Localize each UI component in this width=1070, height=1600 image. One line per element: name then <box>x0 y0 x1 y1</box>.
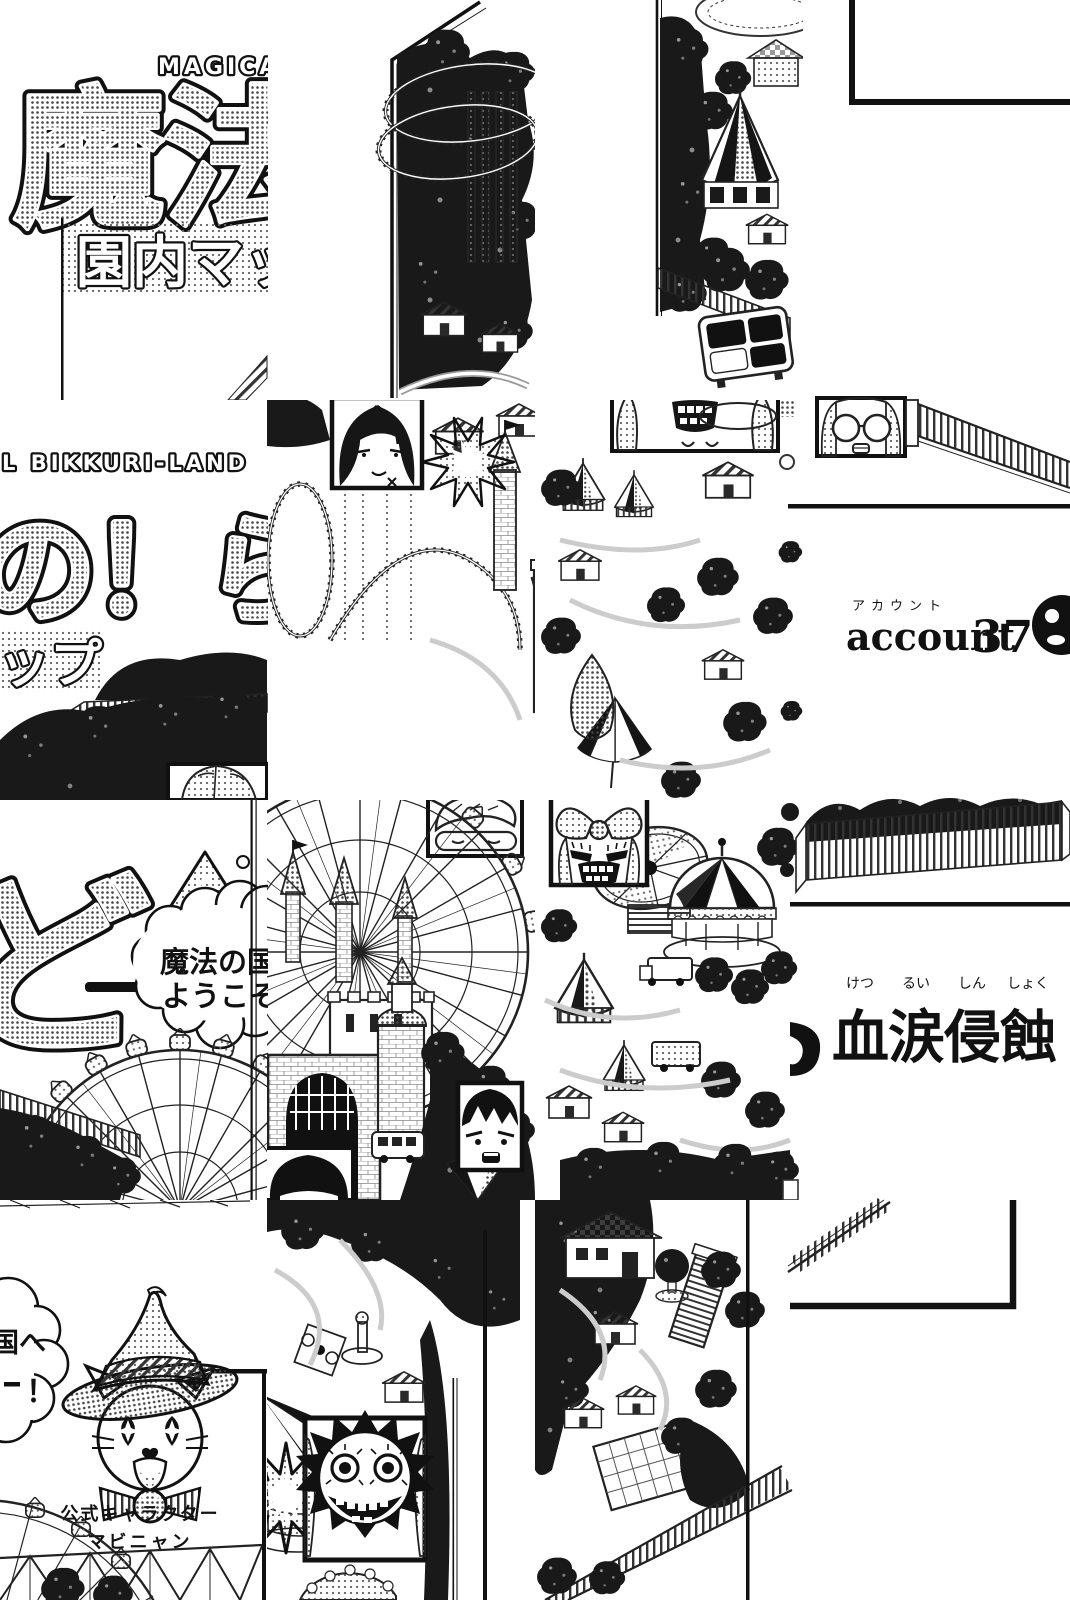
logo-kanji-main: 魔法 <box>14 74 314 248</box>
title-furigana-4: しょく <box>1007 976 1049 992</box>
carousel-canopy-fragment <box>300 1565 396 1600</box>
panel-border <box>746 1200 750 1600</box>
face-frame-ribbon <box>551 793 647 885</box>
tile-plaza-sunface <box>231 1200 520 1600</box>
wheel-strip-fragment <box>0 1200 250 1208</box>
title-kanji-1: 血 <box>832 1004 889 1071</box>
fence-fragment-diagonal <box>788 1198 890 1272</box>
title-icon-partial <box>790 1022 820 1076</box>
tile-mascot: 国へ ！ 公式キャラクター マビニャン <box>0 1200 267 1600</box>
tree-mass <box>267 395 330 448</box>
pool <box>696 0 824 36</box>
title-kanji-2: 涙 <box>888 1004 945 1071</box>
fence-fragment <box>228 356 267 400</box>
tile-map-tents <box>541 390 802 798</box>
manga-page: MAGICA 魔法 魔法 園内マッ <box>0 0 1070 1600</box>
teardrop-topiary <box>571 655 613 739</box>
welcome-line1: 魔法の国 <box>160 945 276 979</box>
tile-story-title: けつ るい しん しょく 血 涙 侵 蝕 <box>790 798 1070 1076</box>
face-frame-fragment-mouth <box>612 390 778 451</box>
park-map-label-top: 園内マッ <box>76 231 300 296</box>
fragment-line2: ！ <box>26 1375 56 1410</box>
panel-border <box>483 1230 487 1600</box>
bubble-connector <box>85 982 140 992</box>
panel-border <box>453 1378 455 1600</box>
logo-en-mid: L BIKKURI-LAND <box>2 451 249 475</box>
title-furigana-3: しん <box>958 976 986 992</box>
speech-bubble-fragment: 国へ ！ <box>0 1278 68 1442</box>
info-board <box>698 306 795 390</box>
fountain <box>342 1312 382 1364</box>
tile-panel-corner <box>852 0 1070 102</box>
chapter-number: 37 <box>972 612 1033 663</box>
truck <box>640 958 692 986</box>
gazebo <box>748 40 804 86</box>
tile-coaster-panel <box>374 2 600 398</box>
panel-border <box>262 1369 266 1600</box>
tile-logo-mid: L BIKKURI-LAND の！らん の！らん ップ <box>0 451 434 800</box>
small-tent <box>615 470 653 516</box>
face-frame-glasses <box>817 398 905 456</box>
face-frame-sun-creature <box>296 1410 434 1560</box>
speech-bubble-welcome: 魔法の国 ようこそ <box>132 881 297 1048</box>
face-frame-boy <box>458 1083 522 1170</box>
fragment-line1: 国へ <box>0 1328 46 1359</box>
hedge-fence-strip <box>796 798 1070 892</box>
tile-rides <box>541 793 799 1200</box>
chapter-icon-partial <box>1032 595 1070 655</box>
park-bus <box>372 1132 424 1163</box>
panel-border <box>251 800 253 1200</box>
tile-bottom-corner <box>788 1198 1013 1306</box>
park-building <box>746 214 788 243</box>
title-kanji-3: 侵 <box>943 1004 1001 1071</box>
tile-chapter-header: アカウント account 37 <box>788 398 1070 663</box>
welcome-line2: ようこそ <box>162 979 278 1013</box>
manga-page-art: MAGICA 魔法 魔法 園内マッ <box>0 0 1070 1600</box>
title-kanji-4: 蝕 <box>1000 1004 1057 1071</box>
panel-border <box>788 504 1070 509</box>
face-frame-woman <box>332 398 422 488</box>
panel-border-corner <box>852 0 1070 102</box>
face-frame-bowlcut <box>263 1148 353 1200</box>
tile-tent-panel <box>657 0 824 390</box>
mascot-cat <box>59 1287 240 1522</box>
story-title-block: けつ るい しん しょく 血 涙 侵 蝕 <box>832 976 1057 1071</box>
panel-border <box>61 218 64 400</box>
castle-spires <box>281 840 417 982</box>
title-furigana-2: るい <box>902 976 930 992</box>
park-map-label-bottom: ップ <box>0 635 102 695</box>
face-frame-fragment-top <box>168 764 267 800</box>
chapter-furigana: アカウント <box>852 599 947 614</box>
panel-border <box>790 902 1070 907</box>
logo-kana-main: の！らん <box>0 502 434 640</box>
tile-shops <box>535 1200 792 1600</box>
title-furigana-1: けつ <box>846 976 874 992</box>
park-fence-diagonal <box>906 400 1070 493</box>
truck <box>652 1042 700 1072</box>
